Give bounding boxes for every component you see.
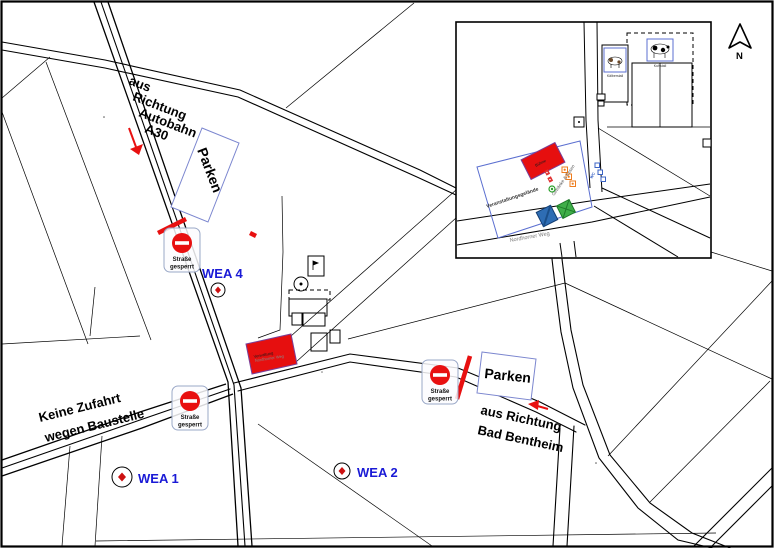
calf-photo: Kälberstall: [604, 48, 626, 78]
road-closed-marker-north: Straße gesperrt: [164, 228, 200, 272]
svg-text:Straße: Straße: [181, 415, 200, 421]
svg-text:WEA 1: WEA 1: [138, 471, 179, 486]
svg-text:WEA 2: WEA 2: [357, 465, 398, 480]
cow-barn-label: Kuhstall: [654, 64, 667, 68]
svg-text:WEA 4: WEA 4: [202, 266, 243, 281]
svg-text:gesperrt: gesperrt: [428, 397, 452, 403]
barn-small: [308, 256, 324, 276]
map-canvas: Verwaltung Nordhorner Weg Parken Parken …: [0, 0, 774, 548]
svg-text:gesperrt: gesperrt: [170, 265, 194, 271]
detail-inset: Kälberstall Kuhstall Bühne: [456, 22, 711, 258]
north-label: N: [736, 51, 743, 62]
parking-area-east: Parken: [477, 352, 536, 400]
road-closed-marker-southwest: Straße gesperrt: [172, 386, 208, 430]
site-access-map: Verwaltung Nordhorner Weg Parken Parken …: [0, 0, 774, 548]
svg-text:Straße: Straße: [173, 257, 192, 263]
calf-barn-label: Kälberstall: [607, 74, 624, 78]
road-closed-marker-east: Straße gesperrt: [422, 360, 458, 404]
svg-text:Straße: Straße: [431, 389, 450, 395]
svg-text:gesperrt: gesperrt: [178, 423, 202, 429]
cow-barn-building: [632, 63, 692, 127]
turbine-wea2: WEA 2: [334, 463, 398, 480]
